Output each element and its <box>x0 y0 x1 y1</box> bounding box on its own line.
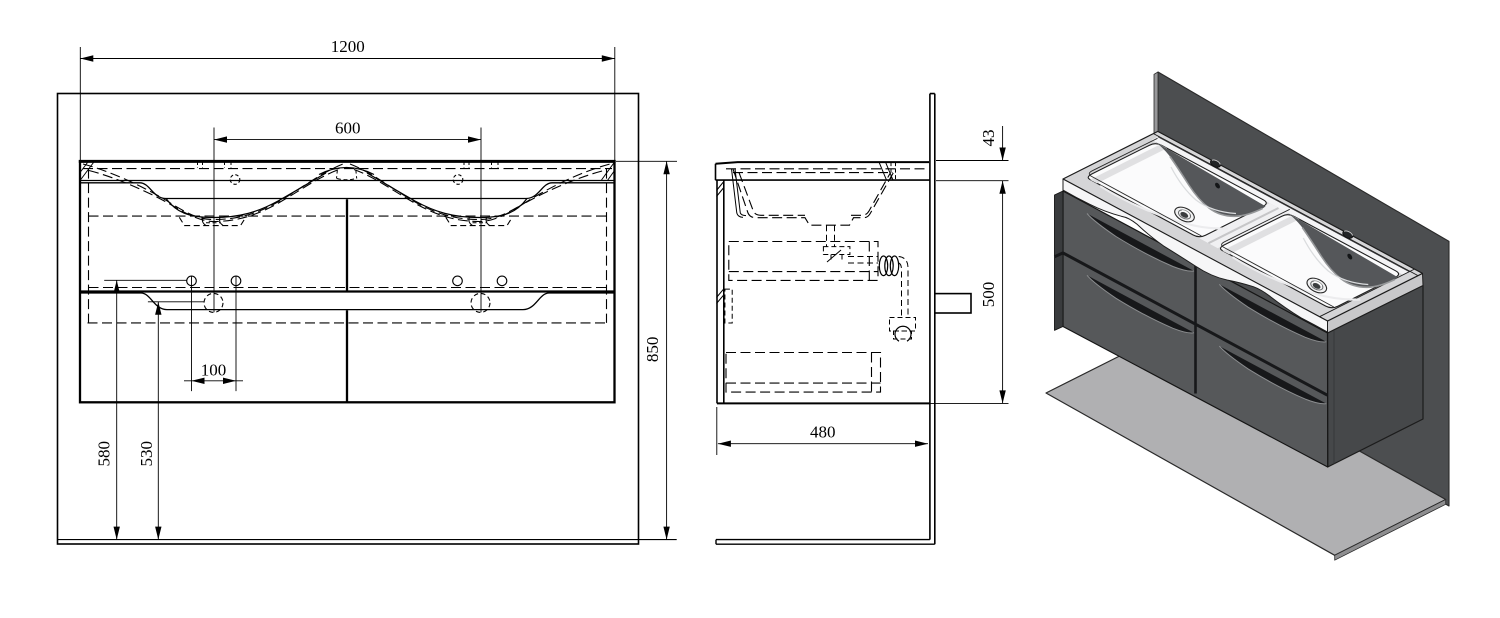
svg-text:500: 500 <box>979 282 998 308</box>
svg-text:43: 43 <box>979 130 998 147</box>
svg-text:580: 580 <box>95 441 114 467</box>
svg-text:480: 480 <box>810 423 836 442</box>
svg-text:1200: 1200 <box>331 37 365 56</box>
svg-text:530: 530 <box>137 441 156 467</box>
svg-text:600: 600 <box>335 119 361 138</box>
svg-text:850: 850 <box>643 337 662 363</box>
svg-text:100: 100 <box>201 361 227 380</box>
